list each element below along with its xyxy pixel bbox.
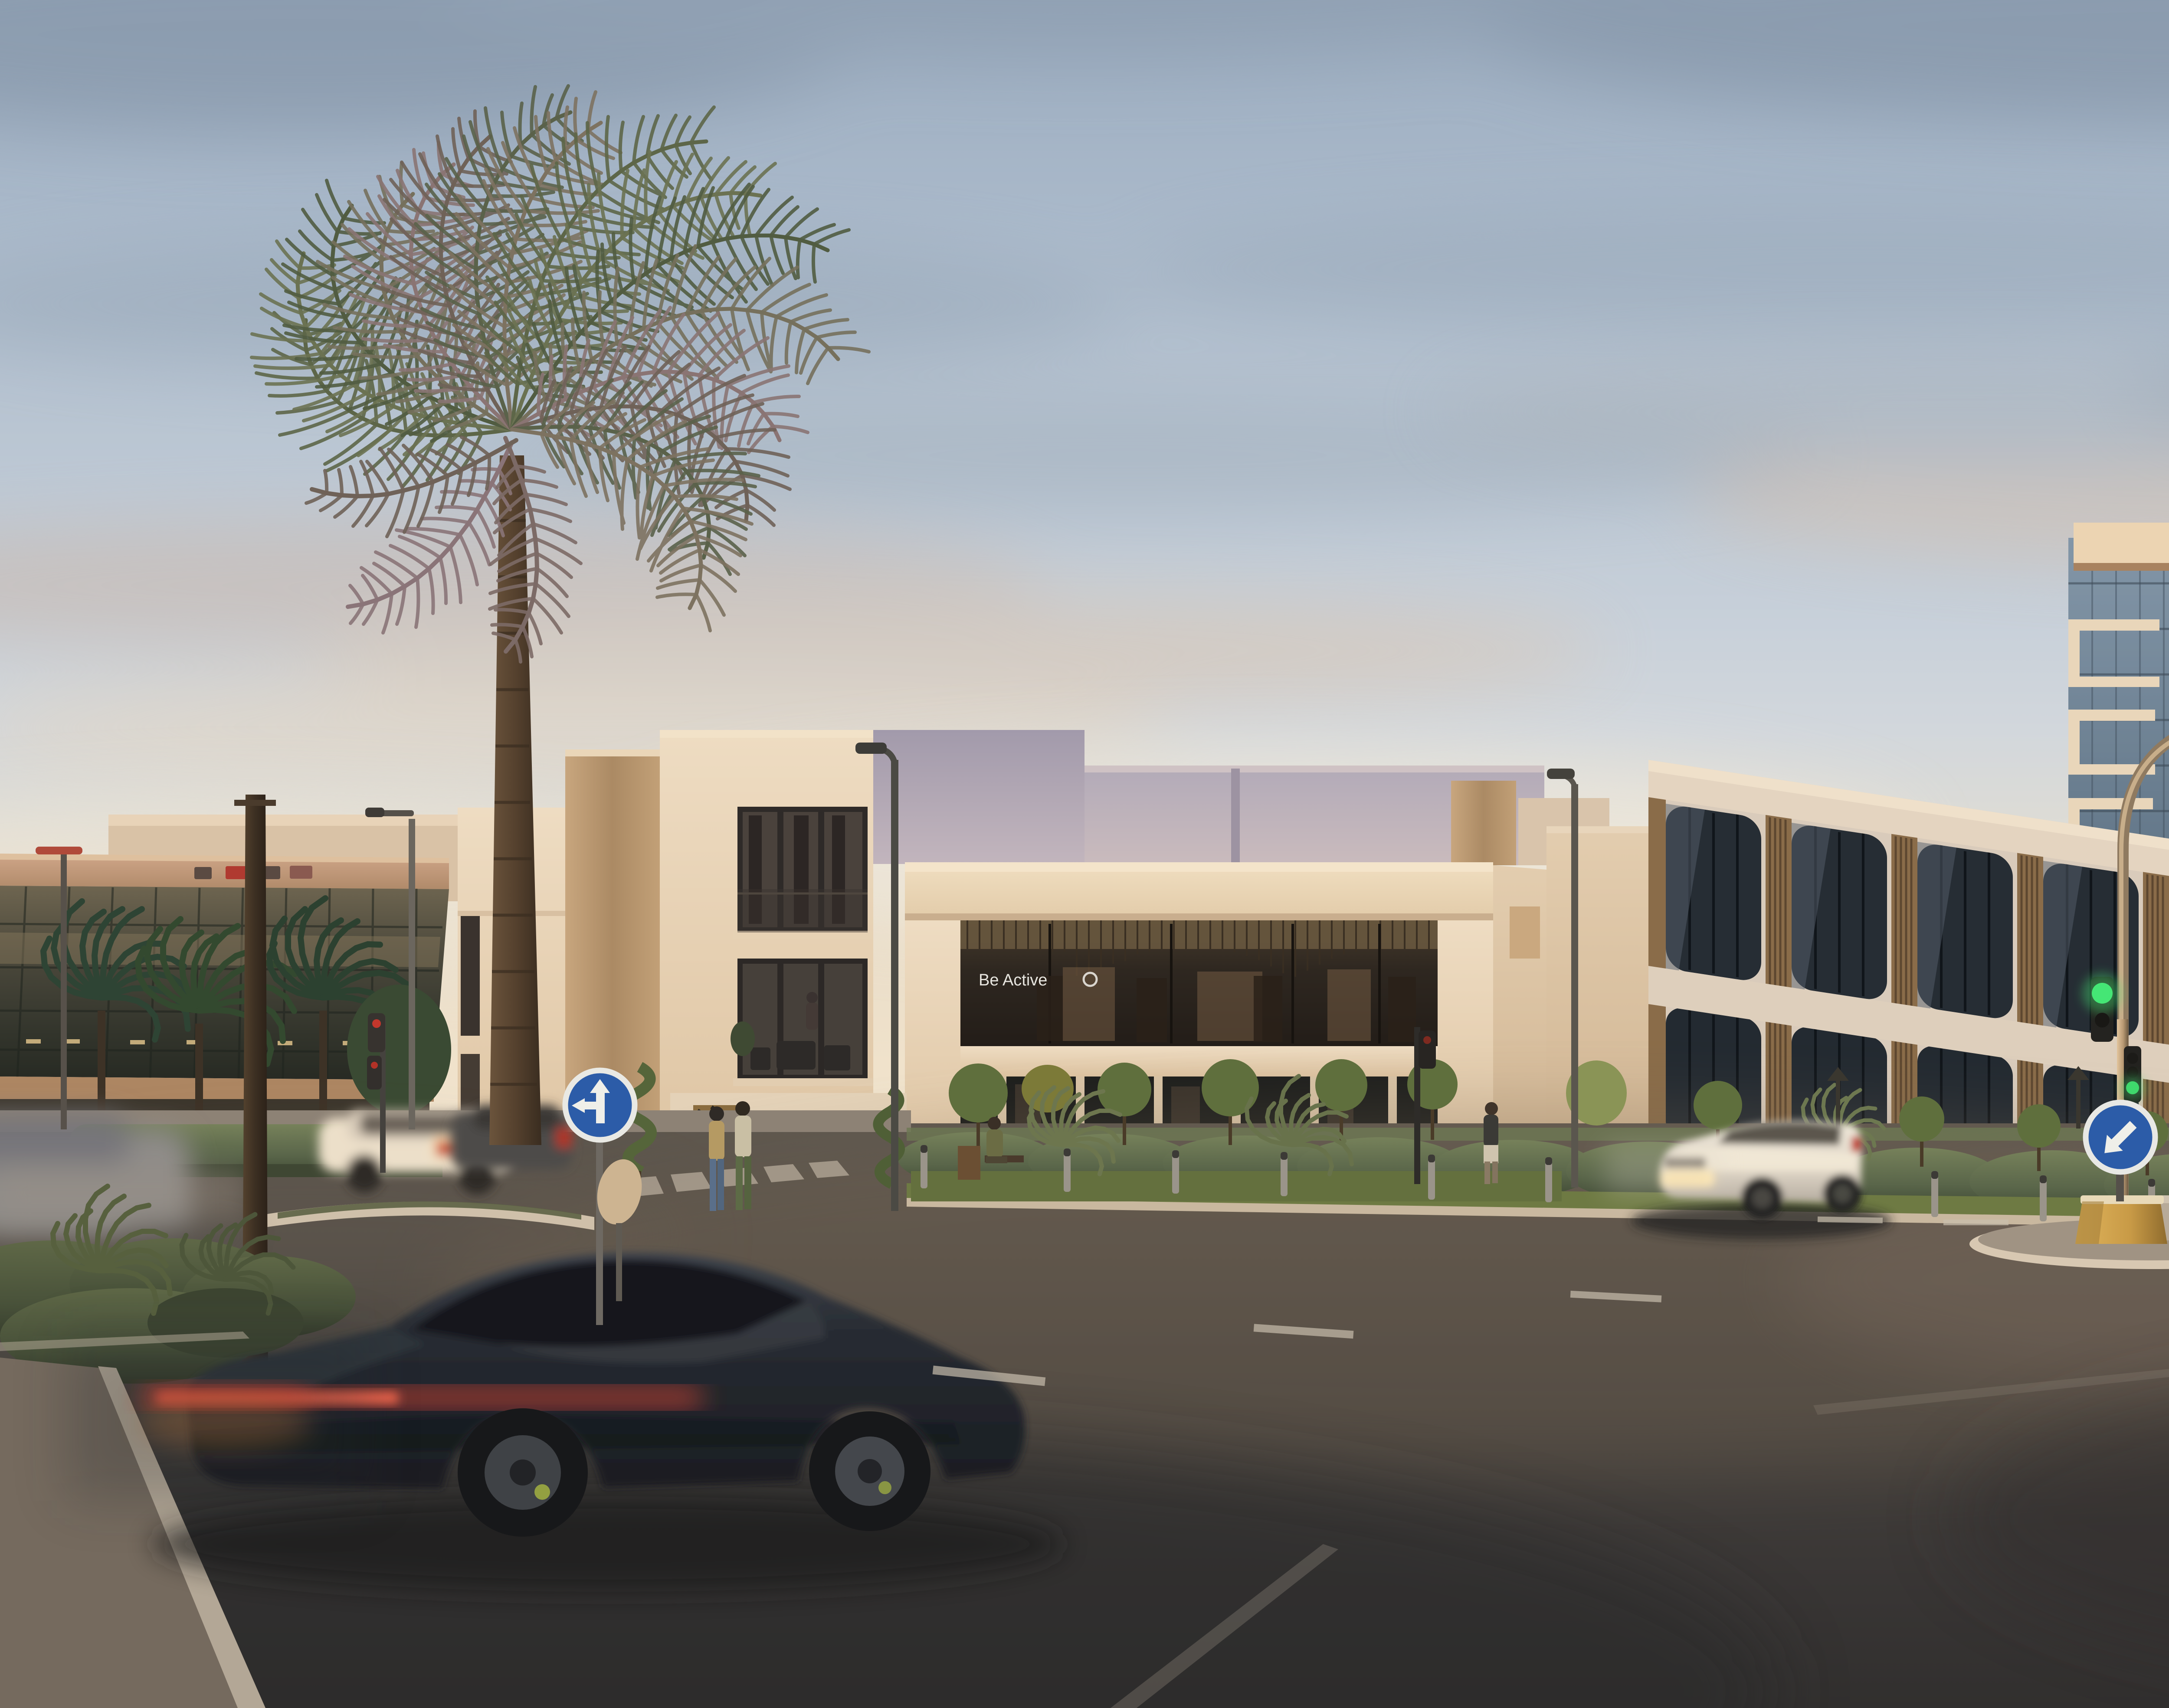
svg-text:Be Active: Be Active [979,971,1047,989]
